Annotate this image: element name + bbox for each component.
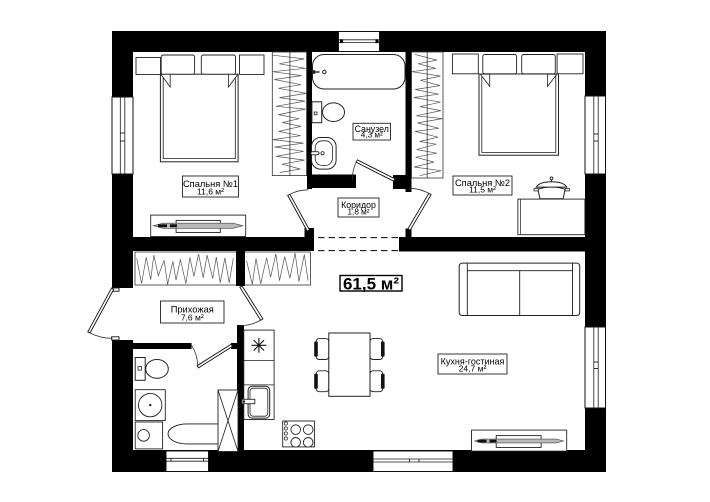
svg-text:24,7 м²: 24,7 м² [459,363,487,373]
svg-text:11,5 м²: 11,5 м² [469,184,496,194]
svg-text:4,3 м²: 4,3 м² [361,130,383,139]
svg-text:1,8 м²: 1,8 м² [347,207,369,216]
svg-text:11,6 м²: 11,6 м² [197,186,224,196]
svg-text:7,6 м²: 7,6 м² [181,312,204,322]
svg-text:61,5 м²: 61,5 м² [343,275,399,294]
